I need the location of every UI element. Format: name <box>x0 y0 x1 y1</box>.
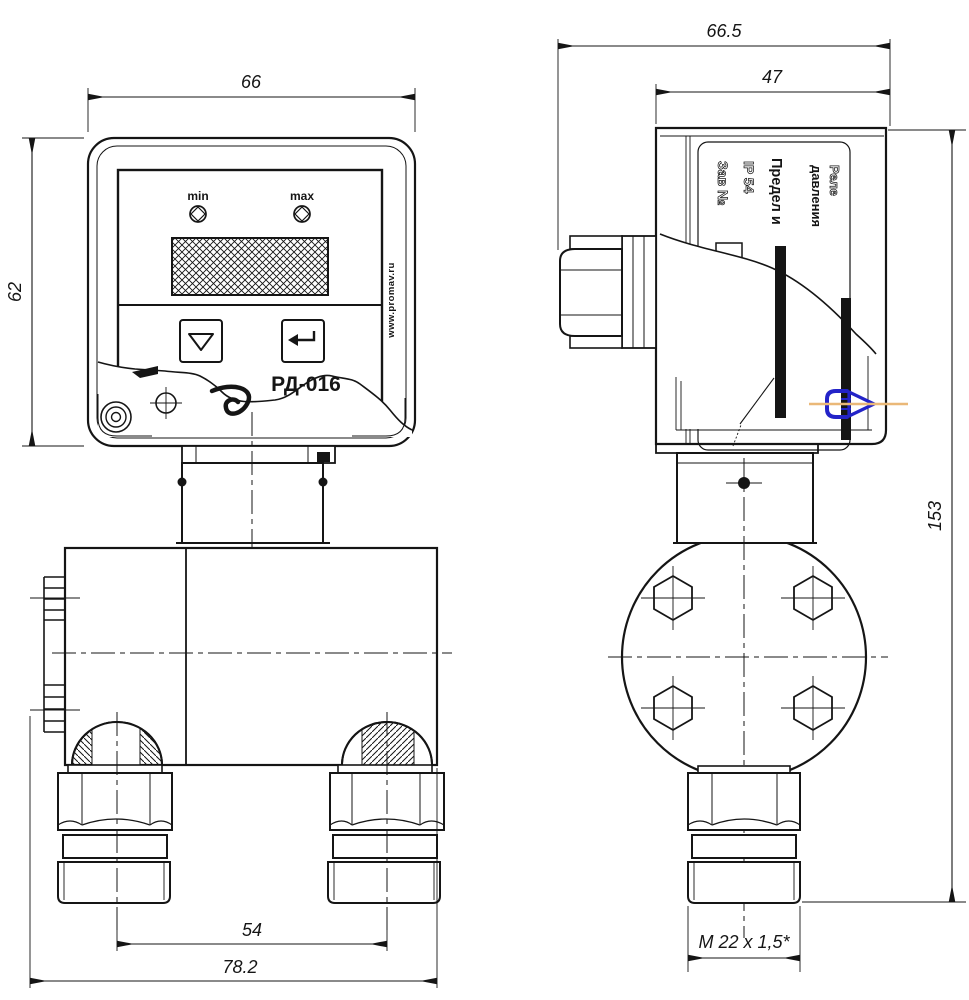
dim-ports-54: 54 <box>117 910 387 951</box>
side-view: 66.5 47 Реле давления Предел и IP 54 Зав… <box>558 21 966 972</box>
dim-height-62: 62 <box>5 138 84 446</box>
dim-label-m22: M 22 x 1,5* <box>698 932 790 952</box>
neck-pin-right <box>319 478 328 487</box>
max-label: max <box>290 189 314 203</box>
neck-notch <box>317 452 330 462</box>
nameplate-line2: давления <box>809 165 824 227</box>
dim-label-66: 66 <box>241 72 262 92</box>
cable-gland <box>560 236 656 348</box>
dim-label-153: 153 <box>925 501 945 531</box>
nameplate-line4: IP 54 <box>741 161 757 194</box>
dim-label-78: 78.2 <box>222 957 257 977</box>
technical-drawing: 66 62 min max <box>0 0 969 1000</box>
sensor-block <box>30 548 452 767</box>
side-neck <box>677 453 813 543</box>
dim-depth-47: 47 <box>656 67 890 124</box>
dim-thread-m22: M 22 x 1,5* <box>688 906 800 972</box>
website-label: www.promav.ru <box>386 262 397 338</box>
dim-width-66: 66 <box>88 72 415 132</box>
nameplate-line1: Реле <box>827 165 842 196</box>
dim-label-54: 54 <box>242 920 262 940</box>
contact-bar-left <box>775 246 786 418</box>
model-label: РД-016 <box>271 373 341 396</box>
nameplate-line5: Зав № <box>715 161 731 206</box>
dim-label-47: 47 <box>762 67 783 87</box>
neck-pin-left <box>178 478 187 487</box>
drawing-page: 66 62 min max <box>0 0 969 1000</box>
fitting-side <box>688 766 800 903</box>
display-window <box>172 238 328 295</box>
min-label: min <box>187 189 208 203</box>
nameplate-line3: Предел и <box>768 158 784 225</box>
dim-label-62: 62 <box>5 282 25 302</box>
front-view: 66 62 min max <box>5 72 452 988</box>
dim-label-66-5: 66.5 <box>706 21 742 41</box>
